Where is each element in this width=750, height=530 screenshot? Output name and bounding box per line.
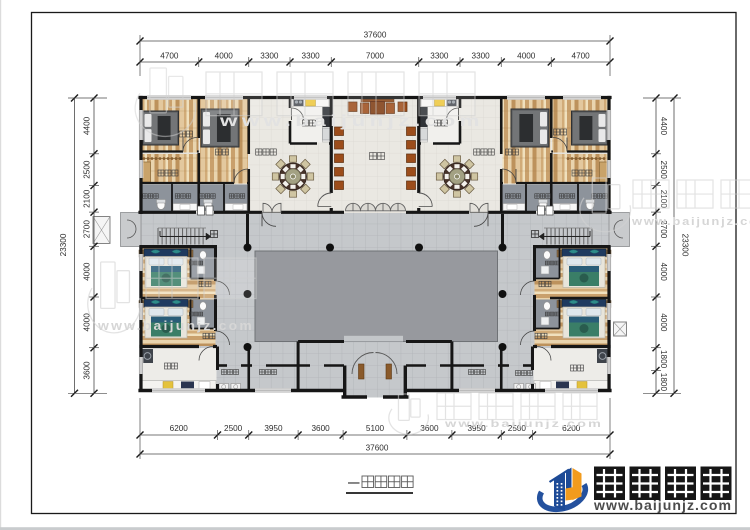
- svg-text:23300: 23300: [681, 234, 690, 257]
- svg-text:23300: 23300: [59, 233, 68, 256]
- svg-text:4000: 4000: [83, 262, 92, 281]
- svg-text:3300: 3300: [302, 52, 321, 61]
- svg-text:5100: 5100: [366, 424, 385, 433]
- svg-text:2500: 2500: [659, 161, 668, 180]
- svg-text:www.baijunjz.com: www.baijunjz.com: [444, 418, 603, 430]
- svg-text:6200: 6200: [170, 424, 189, 433]
- svg-text:2100: 2100: [83, 189, 92, 208]
- svg-text:3300: 3300: [260, 52, 279, 61]
- svg-text:4400: 4400: [83, 116, 92, 135]
- svg-text:1800: 1800: [659, 350, 668, 369]
- svg-text:4000: 4000: [659, 313, 668, 332]
- svg-text:3950: 3950: [264, 424, 283, 433]
- svg-text:4000: 4000: [517, 52, 536, 61]
- svg-text:2500: 2500: [83, 160, 92, 179]
- svg-text:7000: 7000: [366, 52, 385, 61]
- svg-text:3600: 3600: [311, 424, 330, 433]
- svg-text:2700: 2700: [83, 220, 92, 239]
- svg-text:3300: 3300: [472, 52, 491, 61]
- svg-text:www.baijunjz.com: www.baijunjz.com: [97, 319, 254, 333]
- svg-text:4700: 4700: [160, 52, 179, 61]
- svg-text:37600: 37600: [366, 444, 389, 453]
- svg-text:3300: 3300: [430, 52, 449, 61]
- svg-text:4700: 4700: [572, 52, 591, 61]
- svg-text:www.baijunjz.com: www.baijunjz.com: [631, 216, 750, 228]
- svg-text:www.baijunjz.com: www.baijunjz.com: [593, 498, 732, 513]
- svg-text:4400: 4400: [659, 117, 668, 136]
- svg-text:www.baijunjz.com: www.baijunjz.com: [219, 113, 484, 130]
- svg-text:3600: 3600: [83, 361, 92, 380]
- svg-text:4000: 4000: [659, 263, 668, 282]
- svg-text:37600: 37600: [364, 31, 387, 40]
- svg-text:1800: 1800: [659, 373, 668, 392]
- svg-text:2500: 2500: [224, 424, 243, 433]
- svg-text:4000: 4000: [215, 52, 234, 61]
